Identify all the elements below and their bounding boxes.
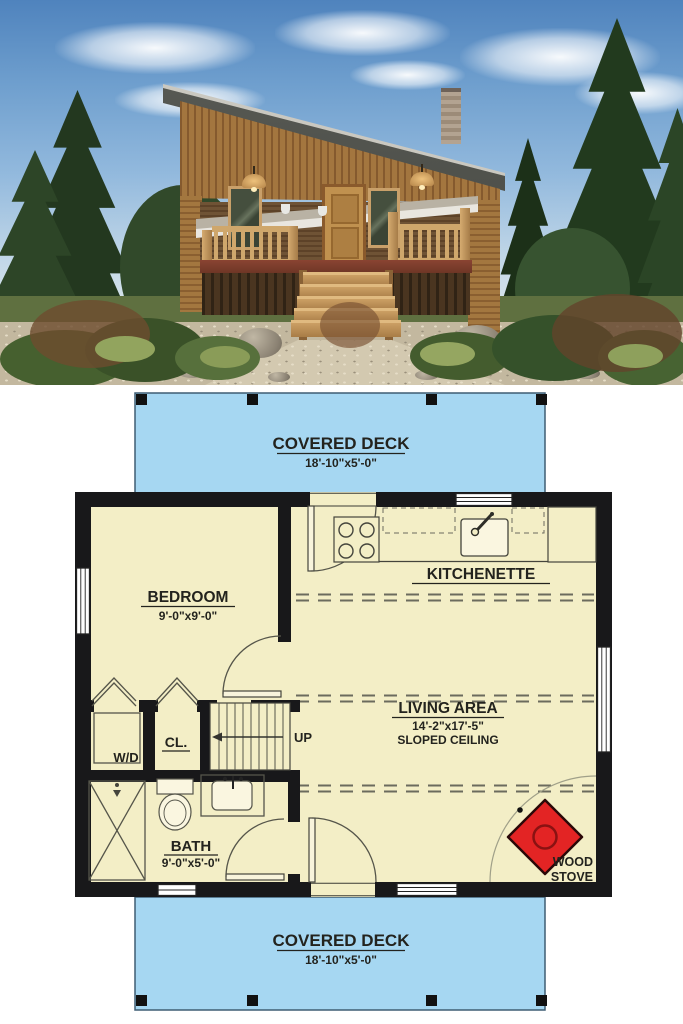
- stairs-up-label: UP: [294, 730, 312, 745]
- cloud: [350, 60, 465, 90]
- front-door: [322, 184, 366, 266]
- rail-balusters: [400, 230, 458, 258]
- deck-post: [536, 995, 547, 1006]
- floor-plan: UP W/D CL. BATH: [0, 385, 683, 1024]
- deck-post: [536, 394, 547, 405]
- closet-label: CL.: [165, 734, 188, 750]
- light-bulb: [251, 187, 257, 192]
- pendant-light: [410, 164, 434, 190]
- living-note: SLOPED CEILING: [397, 733, 498, 747]
- cloud: [55, 22, 255, 74]
- light-shade: [242, 174, 266, 188]
- front-door-leaf: [309, 818, 315, 882]
- toilet-tank: [157, 779, 193, 794]
- laundry-label: W/D: [113, 750, 138, 765]
- deck-post: [247, 995, 258, 1006]
- bedroom-label: BEDROOM: [148, 589, 229, 606]
- light-shade: [410, 172, 434, 186]
- deck-post: [136, 394, 147, 405]
- bath-label: BATH: [171, 838, 212, 855]
- dry-shrub: [320, 302, 380, 348]
- deck-bottom-label: COVERED DECK: [273, 931, 411, 950]
- porch-post: [388, 212, 398, 264]
- bedroom-wall: [278, 492, 291, 642]
- hanging-planter: [318, 206, 327, 216]
- light-bulb: [419, 185, 425, 190]
- kitchenette-label: KITCHENETTE: [427, 566, 536, 583]
- deck-post: [426, 995, 437, 1006]
- grass-tuft: [608, 344, 663, 368]
- grass-tuft: [420, 342, 475, 366]
- hanging-planter: [281, 204, 290, 214]
- bath-door-leaf: [226, 874, 284, 880]
- shower-head: [115, 783, 119, 787]
- cloud: [275, 10, 450, 56]
- deck-top-label: COVERED DECK: [273, 434, 411, 453]
- rock: [268, 372, 290, 382]
- grass-tuft: [200, 346, 250, 368]
- screenshot-root: UP W/D CL. BATH: [0, 0, 683, 1024]
- deck-post: [136, 995, 147, 1006]
- bath-dims: 9'-0"x5'-0": [162, 856, 220, 870]
- bedroom-window: [77, 568, 90, 634]
- deck-post: [426, 394, 437, 405]
- porch-railing: [212, 226, 288, 264]
- bedroom-dims: 9'-0"x9'-0": [159, 609, 217, 623]
- deck-post: [247, 394, 258, 405]
- porch-post: [288, 226, 298, 264]
- bedroom-door-leaf: [223, 691, 281, 697]
- porch-post: [202, 230, 212, 264]
- deck-bottom-dims: 18'-10"x5'-0": [305, 953, 377, 967]
- kitchen-window: [456, 494, 512, 506]
- grass-tuft: [95, 336, 155, 362]
- counter-return: [548, 507, 596, 562]
- door-panel: [331, 227, 359, 259]
- door-panel: [331, 194, 359, 224]
- wood-stove-label-1: WOOD: [553, 855, 593, 869]
- pendant-light: [242, 166, 266, 192]
- living-label: LIVING AREA: [398, 700, 497, 717]
- porch-post: [460, 208, 470, 264]
- living-dims: 14'-2"x17'-5": [412, 719, 484, 733]
- deck-top-dims: 18'-10"x5'-0": [305, 456, 377, 470]
- wood-stove-label-2: STOVE: [551, 870, 593, 884]
- porch-railing: [398, 224, 460, 264]
- living-window-front: [397, 884, 457, 896]
- rail-balusters: [214, 232, 286, 259]
- rear-door-leaf: [308, 506, 314, 571]
- chimney: [441, 88, 461, 144]
- living-window-right: [598, 647, 611, 752]
- left-wall-siding: [180, 196, 202, 312]
- kitchen-sink: [461, 519, 508, 556]
- cabin-exterior-render: [0, 0, 683, 385]
